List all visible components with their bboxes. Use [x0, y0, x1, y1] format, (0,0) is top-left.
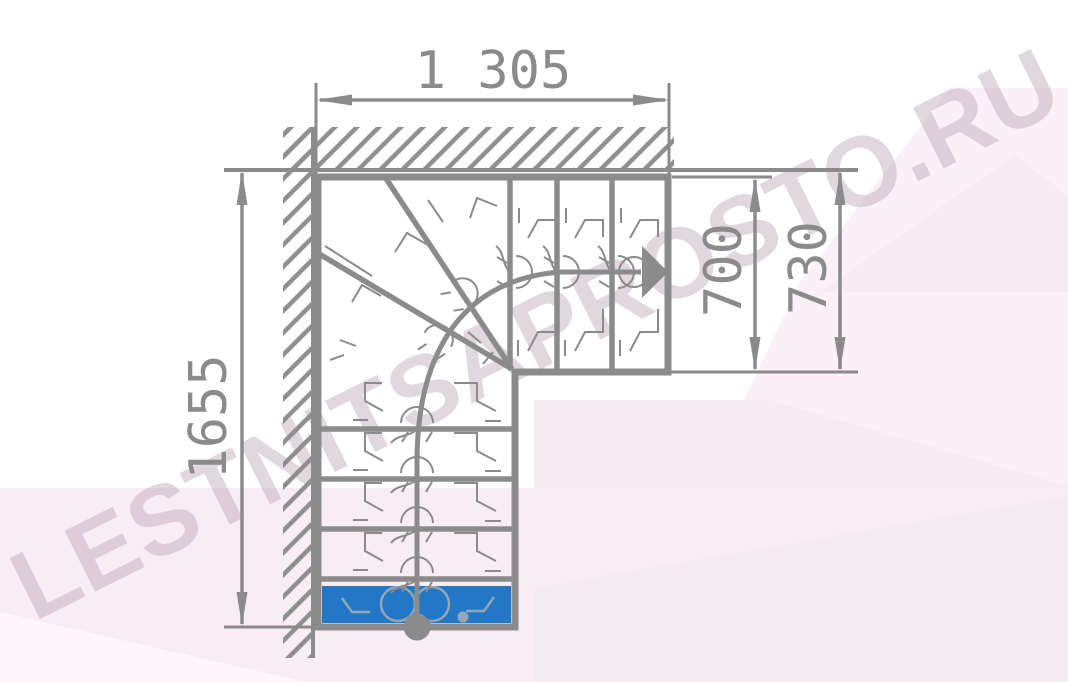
- dimension-right-inner-label: 700: [694, 223, 754, 317]
- stair-plan-drawing: LESTNITSAPROSTO.RU: [0, 0, 1068, 682]
- top-wall-hatch: [283, 127, 674, 172]
- walking-line-start-dot: [404, 614, 431, 641]
- dimension-top-width-label: 1 305: [415, 41, 572, 101]
- dimension-left-height-label: 1655: [179, 354, 239, 479]
- left-wall-hatch: [283, 127, 315, 658]
- stair-plan-page: LESTNITSAPROSTO.RU: [0, 0, 1068, 682]
- dimension-right-outer-label: 730: [779, 221, 839, 315]
